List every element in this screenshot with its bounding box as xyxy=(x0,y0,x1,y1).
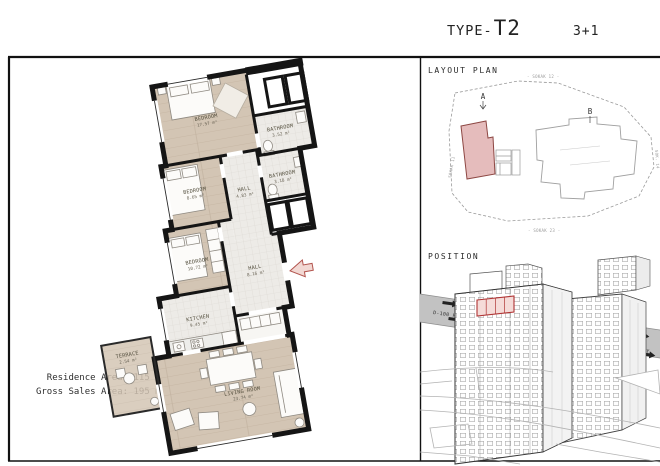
stove-icon xyxy=(191,338,204,349)
entrance-arrow-icon xyxy=(289,258,315,279)
site-plan: A B - SOKAK 12 - - SOKAK 23 - SOKAK 11 S… xyxy=(447,74,660,233)
tower-left xyxy=(455,264,572,464)
plan-sheet: TYPE- T2 3+1 LAYOUT PLAN POSITION Reside… xyxy=(0,0,660,466)
street-label-top: - SOKAK 12 - xyxy=(527,74,560,79)
sheet-drawing: BEDROOM 17.57 m² BATHROOM 3.52 m² BEDROO… xyxy=(0,0,660,466)
sink-icon xyxy=(296,111,307,123)
position-drawing: D-100 HIGHWAY D-100 HIGHWAY xyxy=(420,256,660,464)
street-label-bottom: - SOKAK 23 - xyxy=(528,228,561,233)
block-a-label: A xyxy=(481,92,486,101)
block-b-label: B xyxy=(588,107,593,116)
street-label-right: SOK. 14 xyxy=(654,150,660,170)
floor-plan: BEDROOM 17.57 m² BATHROOM 3.52 m² BEDROO… xyxy=(58,57,366,461)
armchair-icon xyxy=(198,412,219,430)
entrance-opening xyxy=(285,263,288,281)
